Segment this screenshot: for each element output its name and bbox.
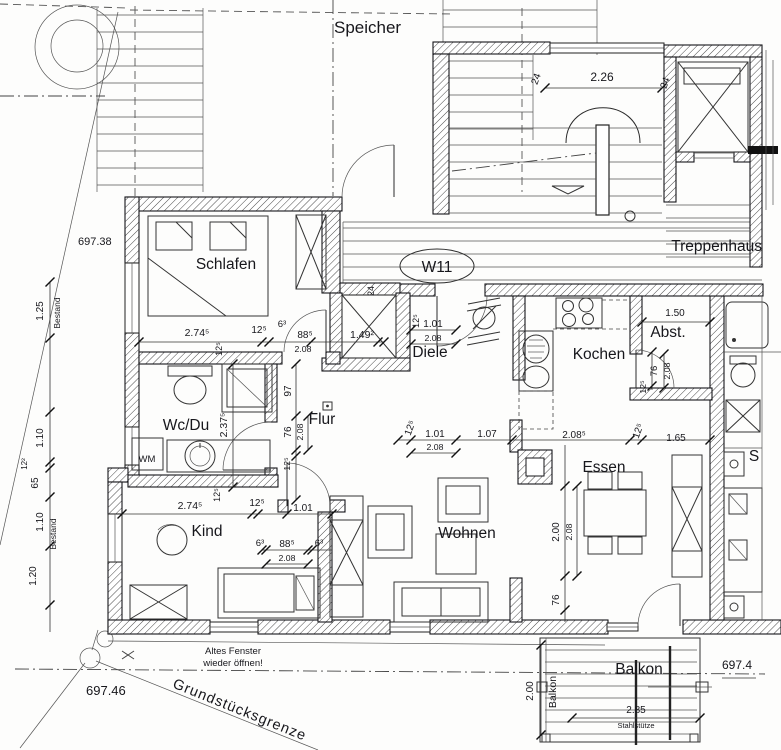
floor-plan: Speicher Treppenhaus W11 Schlafen Diele …	[0, 0, 781, 750]
dim-essen-opening-h2: 2.08	[564, 523, 574, 540]
entrance-door	[437, 296, 487, 346]
dim-kind-door-jamb-r: 6³	[315, 538, 323, 549]
note-line2: wieder öffnen!	[202, 658, 263, 669]
dim-schlafen-width: 2.74⁵	[185, 327, 210, 339]
label-kind: Kind	[191, 523, 222, 540]
vanity-sink	[167, 440, 270, 472]
dim-wcdu-door-w: 76	[283, 426, 294, 438]
cabinet	[672, 455, 702, 577]
dim-main-door-h: 2.08	[427, 442, 444, 452]
label-abst: Abst.	[650, 324, 685, 341]
floor-plan-drawing: Speicher Treppenhaus W11 Schlafen Diele …	[0, 0, 781, 750]
dim-schlafen-door-h: 2.08	[295, 344, 312, 354]
dim-schlafen-door-w: 88⁵	[297, 330, 312, 341]
dim-main-door-w: 1.01	[425, 429, 445, 440]
dim-chimney: 24	[366, 286, 376, 296]
dim-left-2: 1.10	[35, 428, 46, 448]
label-balkon-side: Balkon	[547, 676, 559, 708]
dim-left-5: 1.10	[35, 512, 46, 532]
label-neighbor-room: S	[749, 448, 759, 465]
dim-schlafen-wall-side: 12⁵	[214, 342, 224, 356]
label-schlafen: Schlafen	[196, 256, 256, 273]
dim-left-6: 1.20	[28, 566, 39, 586]
toilet	[168, 366, 212, 404]
label-diele: Diele	[412, 344, 447, 361]
elevation-upper-left: 697.38	[78, 236, 112, 248]
dim-abst-door-h: 2.08	[662, 362, 672, 379]
balcony-door	[638, 584, 680, 626]
dim-left-1: 1.25	[35, 301, 46, 321]
dim-flur-seg: 97	[283, 385, 294, 397]
dim-essen-pier: 76	[551, 594, 562, 606]
kitchen-counter	[519, 298, 630, 429]
dim-abst-wall: 12⁵	[638, 380, 648, 394]
dim-kind-door: 1.01	[293, 503, 313, 514]
speicher-door	[342, 145, 394, 197]
dim-abst-width: 1.50	[665, 308, 685, 319]
dim-essen-width: 1.65	[666, 433, 686, 444]
dim-diele-door-w: 1.01	[423, 319, 443, 330]
label-balkon: Balkon	[615, 661, 662, 678]
dim-left-3: 12²	[20, 458, 29, 470]
label-essen: Essen	[582, 459, 625, 476]
label-bestand-2: Bestand	[48, 518, 58, 549]
label-unit: W11	[422, 259, 453, 276]
dim-wcdu-door-h: 2.08	[295, 423, 305, 440]
dim-diele-door-h: 2.08	[425, 333, 442, 343]
dim-balkon-depth: 2.00	[525, 681, 536, 701]
dim-balkon-width: 2.85	[626, 705, 646, 716]
wardrobe	[330, 496, 363, 617]
chair	[157, 525, 187, 555]
elevation-lower-right: 697.4	[722, 658, 752, 672]
label-stahlstuetze: Stahlstütze	[617, 721, 654, 730]
dim-essen-opening-h: 2.00	[551, 522, 562, 542]
dim-living-opening: 2.08⁵	[562, 430, 586, 441]
dim-diele-wall: 12⁵	[411, 314, 421, 328]
dim-kind-door-h: 2.08	[279, 553, 296, 563]
note-line1: Altes Fenster	[205, 646, 261, 657]
label-treppenhaus: Treppenhaus	[671, 238, 762, 255]
dim-wcdu-depth: 2.37⁵	[218, 413, 230, 438]
label-wohnen: Wohnen	[438, 525, 495, 542]
meter-symbol	[467, 298, 501, 345]
label-bestand-1: Bestand	[52, 297, 62, 328]
elevator	[664, 45, 778, 267]
living-furniture	[330, 478, 488, 622]
text-labels: Speicher Treppenhaus W11 Schlafen Diele …	[48, 18, 762, 744]
dim-schlafen-wall: 12⁵	[251, 325, 266, 336]
kind-door	[287, 463, 330, 506]
elevation-lower-left: 697.46	[86, 683, 126, 698]
dim-wall-top-left: 24	[530, 72, 544, 87]
dim-main-opening: 1.07	[477, 429, 497, 440]
dim-flur-wall: 12⁵	[282, 457, 292, 471]
dim-wcdu-wall-bottom: 12⁵	[212, 488, 222, 502]
dim-kind-width: 2.74⁵	[178, 500, 203, 512]
label-kochen: Kochen	[573, 346, 626, 363]
label-wcdu: Wc/Du	[163, 417, 210, 434]
dim-main-wall: 12⁵	[403, 419, 419, 437]
dim-kind-wall: 12⁵	[249, 498, 264, 509]
dim-left-4: 65	[30, 477, 41, 489]
label-flur: Flur	[309, 411, 336, 428]
dim-kind-door-jamb-l: 6³	[256, 538, 264, 549]
dim-schlafen-door-jamb: 6³	[278, 319, 286, 330]
steel-post	[690, 734, 698, 742]
label-wm: WM	[139, 454, 156, 465]
wcdu-door	[223, 422, 271, 470]
wall-cap	[748, 146, 778, 154]
dim-kind-door-w: 88⁵	[279, 539, 294, 550]
dim-shaft-width: 1.49²	[350, 329, 374, 341]
label-speicher: Speicher	[334, 18, 401, 37]
label-grundstuecksgrenze: Grundstücksgrenze	[170, 676, 308, 744]
dim-stair-width: 2.26	[590, 70, 614, 84]
dim-abst-door-w: 76	[649, 366, 660, 377]
